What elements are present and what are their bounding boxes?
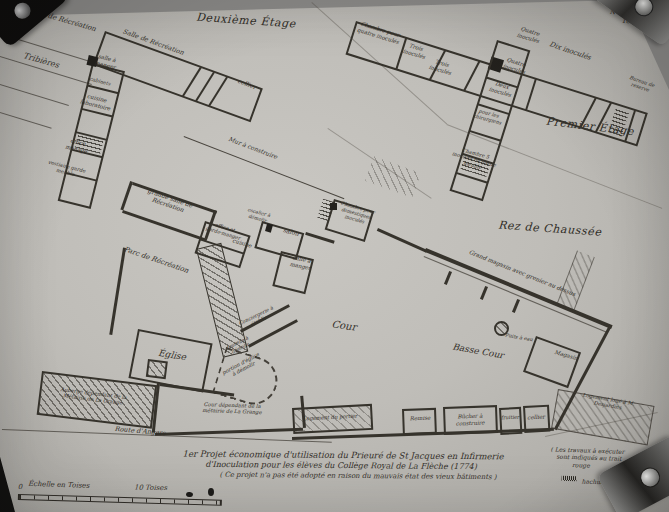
partition-wall [182,67,201,97]
clip-screw [631,0,657,20]
partition-wall [463,61,480,91]
photographed-floor-plan: Deuxième Étage Parc de Récréation Tribiè… [0,0,669,512]
partition-wall [195,72,214,102]
label-remise: Remise [404,414,436,422]
partition-wall [580,98,597,128]
scale-ten-toises: 10 Toises [134,484,184,493]
partition-wall [469,130,501,141]
clip-screw [637,464,664,491]
clip-screw [11,0,34,22]
ink-blot [208,488,214,496]
chimney-block [330,203,337,210]
room-outline-fruitier [499,407,522,435]
scribbled-out-word [562,476,577,482]
label-fruitier: fruitier [498,413,522,420]
label-bucher: Bûcher à construire [446,412,494,427]
partition-wall [208,76,227,106]
scale-zero: 0 [16,483,24,492]
partition-wall [525,78,536,110]
auberge-annex [146,359,168,379]
